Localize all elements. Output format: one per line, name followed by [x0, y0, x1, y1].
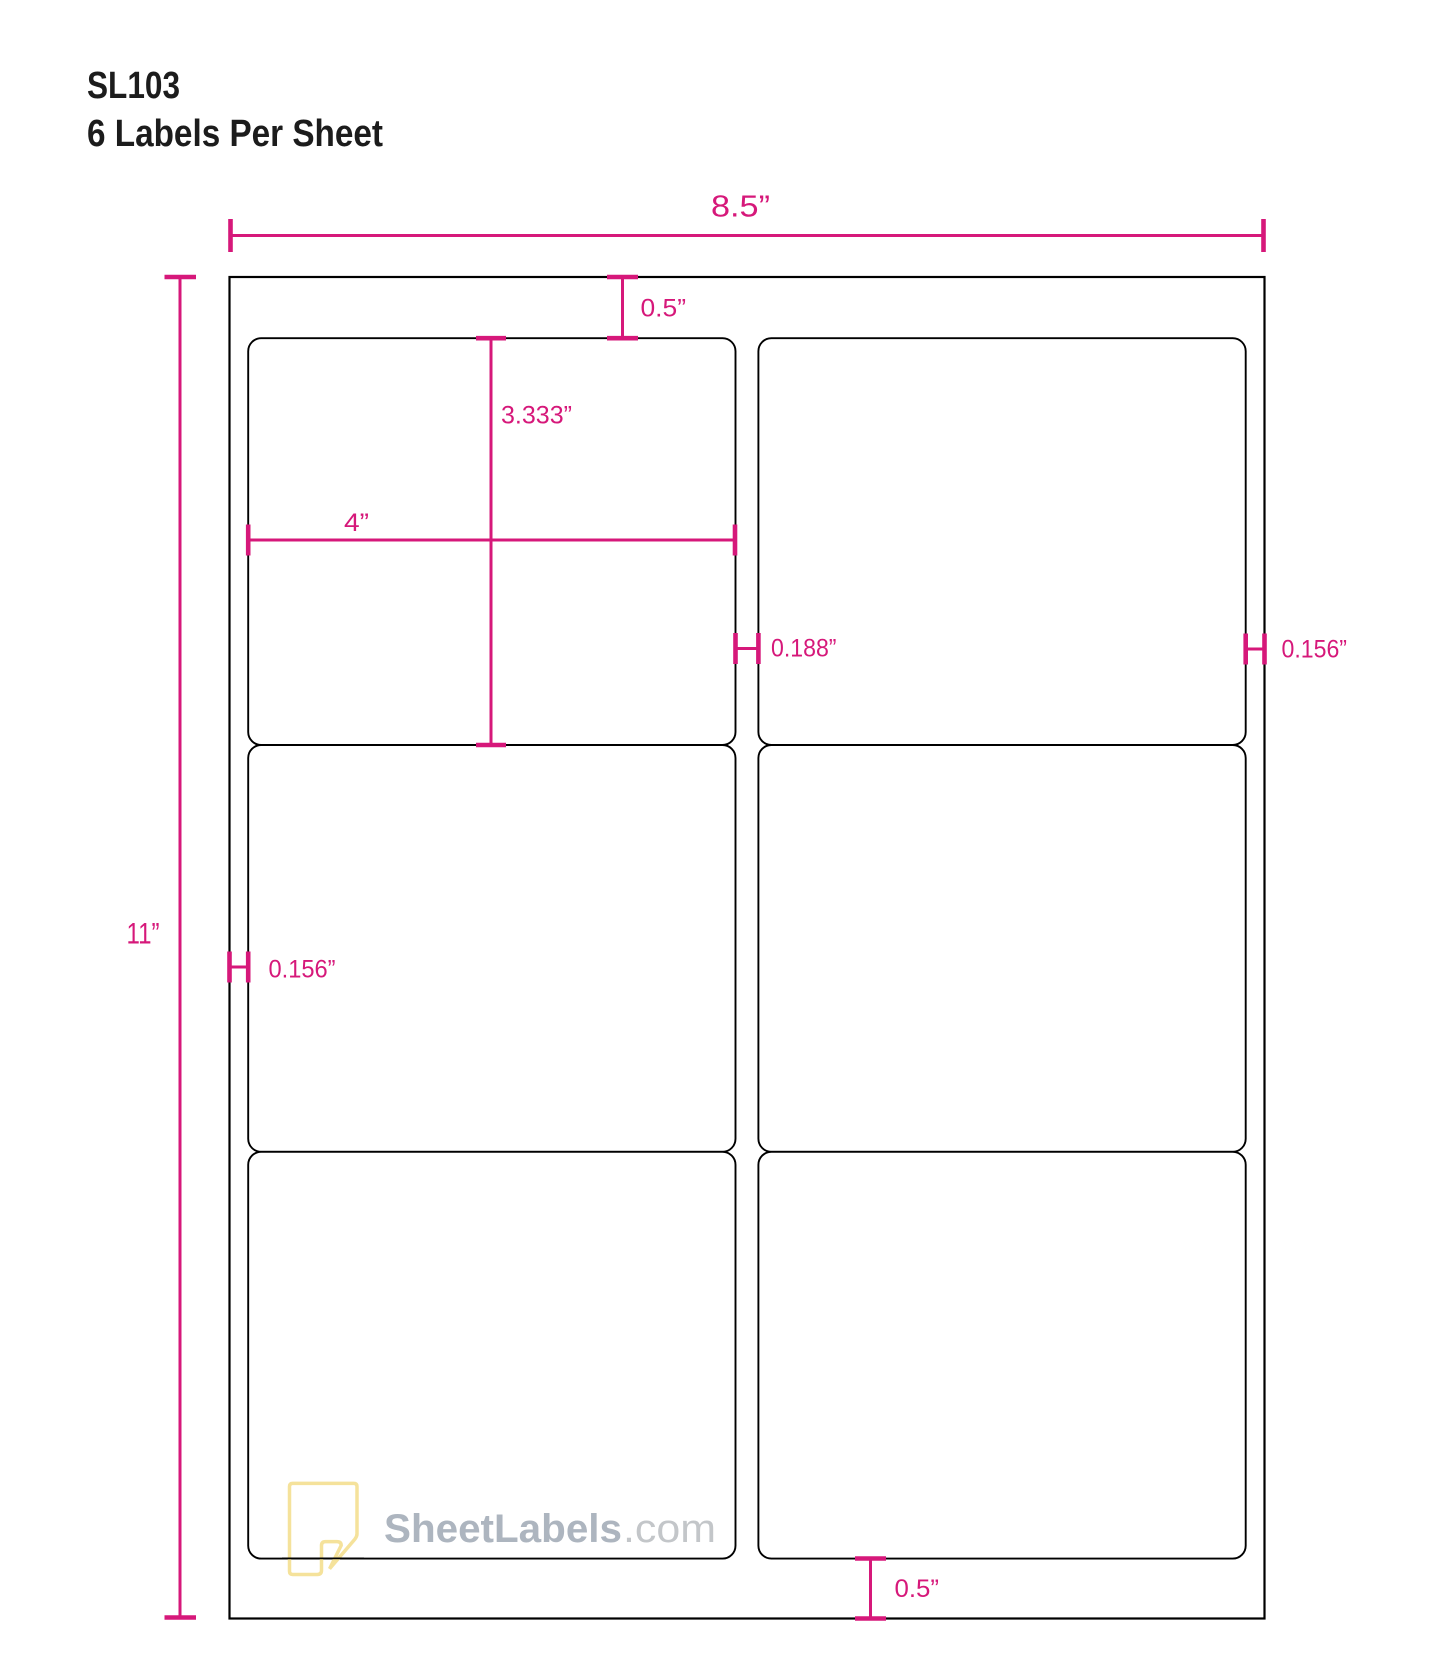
- svg-text:0.156”: 0.156”: [1282, 636, 1348, 664]
- svg-text:11”: 11”: [127, 918, 160, 951]
- svg-text:8.5”: 8.5”: [711, 189, 770, 224]
- svg-text:0.5”: 0.5”: [895, 1575, 940, 1603]
- svg-text:SL103: SL103: [87, 65, 180, 107]
- svg-text:SheetLabels: SheetLabels: [384, 1507, 622, 1551]
- svg-text:0.188”: 0.188”: [771, 635, 837, 663]
- svg-text:4”: 4”: [344, 509, 369, 537]
- svg-text:0.156”: 0.156”: [269, 956, 336, 984]
- svg-text:3.333”: 3.333”: [501, 402, 572, 430]
- svg-text:6 Labels Per Sheet: 6 Labels Per Sheet: [87, 113, 383, 155]
- svg-text:.com: .com: [623, 1507, 716, 1551]
- svg-text:0.5”: 0.5”: [641, 295, 687, 323]
